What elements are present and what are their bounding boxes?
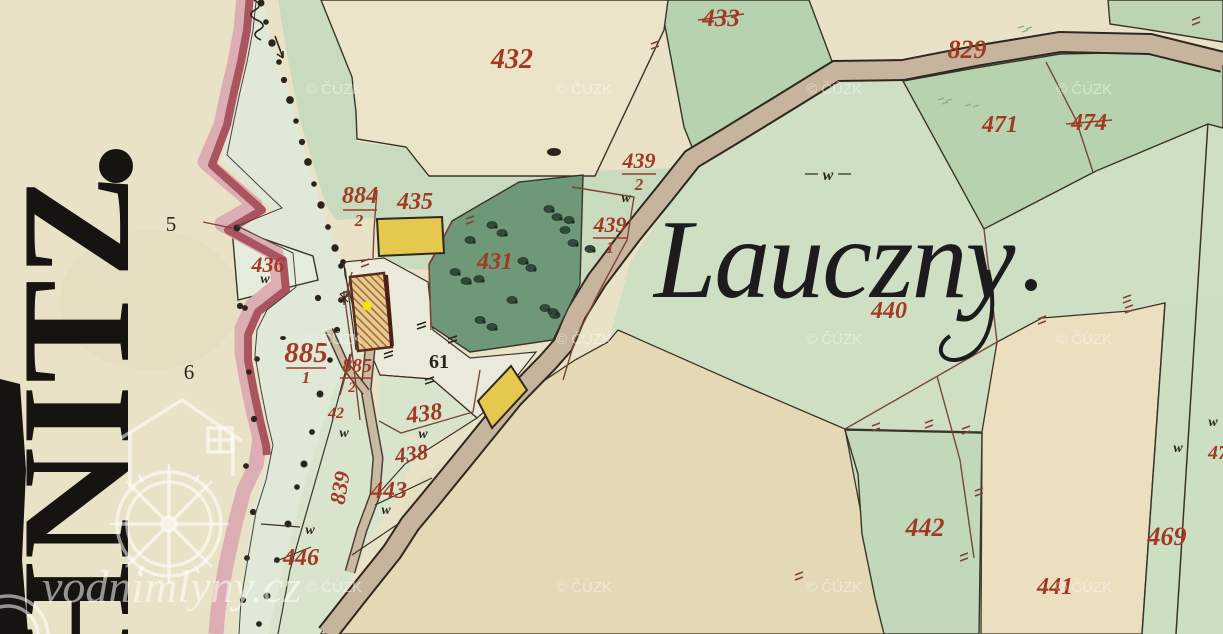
- svg-text:42: 42: [327, 405, 344, 422]
- svg-text:829: 829: [948, 35, 987, 64]
- svg-text:435: 435: [396, 189, 433, 215]
- svg-text:432: 432: [490, 44, 533, 75]
- svg-text:2: 2: [354, 211, 364, 230]
- svg-text:w: w: [418, 427, 428, 442]
- svg-text:w: w: [1173, 441, 1183, 456]
- svg-text:© ČÚZK: © ČÚZK: [556, 81, 612, 98]
- svg-text:w: w: [621, 191, 631, 206]
- svg-text:© ČÚZK: © ČÚZK: [1056, 81, 1112, 98]
- svg-text:© ČÚZK: © ČÚZK: [806, 81, 862, 98]
- svg-text:2: 2: [347, 380, 356, 396]
- svg-text:431: 431: [476, 249, 513, 275]
- svg-text:© ČÚZK: © ČÚZK: [1056, 579, 1112, 596]
- svg-text:Lauczny: Lauczny: [652, 198, 1016, 322]
- svg-text:47: 47: [1207, 442, 1223, 464]
- svg-text:© ČÚZK: © ČÚZK: [806, 331, 862, 348]
- svg-text:439: 439: [593, 212, 627, 237]
- svg-text:© ČÚZK: © ČÚZK: [306, 81, 362, 98]
- svg-text:439: 439: [622, 148, 656, 173]
- svg-text:w: w: [823, 167, 834, 184]
- svg-text:438: 438: [404, 399, 444, 430]
- svg-text:w: w: [1208, 415, 1218, 430]
- svg-text:1: 1: [302, 368, 311, 387]
- svg-text:© ČÚZK: © ČÚZK: [306, 579, 362, 596]
- svg-text:442: 442: [905, 513, 945, 542]
- svg-text:5: 5: [166, 212, 177, 236]
- svg-text:w: w: [381, 503, 391, 518]
- svg-text:438: 438: [392, 439, 429, 468]
- svg-text:© ČÚZK: © ČÚZK: [806, 579, 862, 596]
- svg-text:© ČÚZK: © ČÚZK: [556, 331, 612, 348]
- svg-text:6: 6: [184, 360, 195, 384]
- svg-text:469: 469: [1147, 522, 1187, 551]
- svg-text:vodnimlyny.cz: vodnimlyny.cz: [42, 561, 301, 612]
- svg-text:440: 440: [870, 298, 907, 324]
- svg-text:w: w: [339, 426, 349, 441]
- svg-text:© ČÚZK: © ČÚZK: [1056, 331, 1112, 348]
- svg-text:w: w: [260, 272, 270, 287]
- svg-text:471: 471: [981, 112, 1018, 138]
- svg-text:© ČÚZK: © ČÚZK: [556, 579, 612, 596]
- svg-text:61: 61: [429, 351, 449, 373]
- svg-text:443: 443: [370, 478, 407, 504]
- svg-text:w: w: [305, 523, 315, 538]
- svg-text:885: 885: [342, 355, 372, 377]
- svg-text:1: 1: [606, 238, 615, 257]
- svg-text:2: 2: [634, 175, 644, 194]
- svg-text:884: 884: [342, 183, 378, 209]
- svg-text:© ČÚZK: © ČÚZK: [306, 331, 362, 348]
